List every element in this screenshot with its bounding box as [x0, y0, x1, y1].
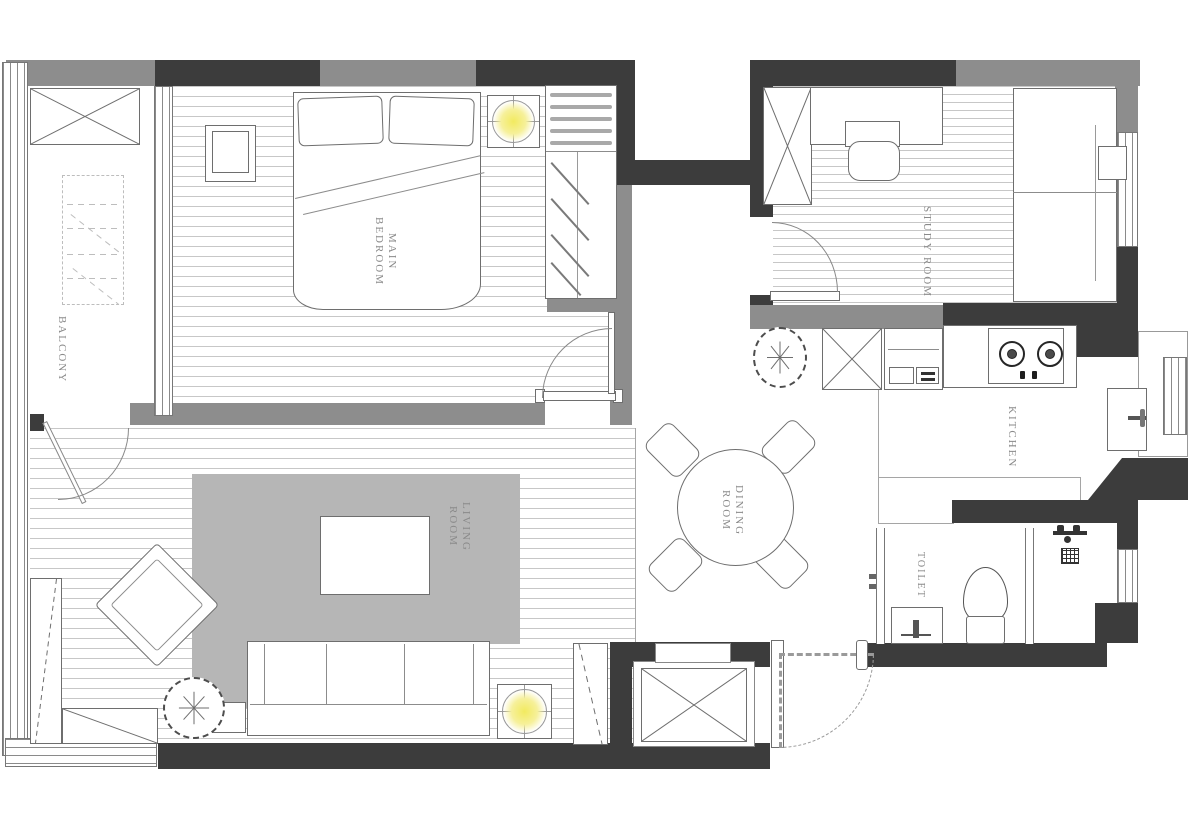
tv-diagonal-icon — [31, 579, 61, 743]
balcony-storage-cabinet — [30, 88, 140, 145]
burner-icon — [1037, 341, 1063, 367]
wall-gray — [750, 305, 943, 329]
wall — [1117, 523, 1138, 549]
wall-gray — [547, 298, 610, 312]
window-left — [2, 62, 28, 756]
study-bed — [1013, 88, 1117, 302]
sink-faucet-icon — [901, 634, 931, 636]
window-kitchen-right — [1163, 357, 1187, 435]
room-label-kitchen: KITCHEN — [1000, 404, 1018, 470]
wall-diagonal — [1088, 458, 1188, 500]
wall-gray — [320, 60, 476, 86]
niche-window — [655, 643, 731, 663]
desk-chair — [848, 141, 900, 181]
shower-drain — [1061, 548, 1079, 564]
x-cross-icon — [764, 88, 811, 204]
tv-unit — [30, 578, 62, 744]
x-cross-icon — [642, 669, 746, 741]
wall — [1075, 329, 1138, 357]
wall-gray — [6, 60, 155, 86]
cabinet-drawer — [889, 367, 914, 384]
wall-gray — [1115, 86, 1138, 132]
window-toilet-right — [1117, 549, 1138, 603]
coffee-table — [320, 516, 430, 595]
wall-gray — [130, 403, 545, 425]
study-bed-side-line — [1095, 125, 1096, 281]
sofa — [247, 641, 490, 736]
drying-rack — [62, 175, 124, 305]
tv-console — [62, 708, 158, 744]
window-balcony-partition — [154, 86, 173, 416]
wardrobe-divider — [546, 151, 616, 152]
toilet-top-edge — [878, 523, 954, 524]
ceiling-lamp-bedroom — [487, 95, 540, 148]
toilet-bowl — [963, 567, 1008, 623]
study-door-leaf — [770, 291, 840, 301]
shower-head-icon — [1064, 536, 1071, 543]
shower-tap-icon — [1057, 525, 1064, 532]
wall — [155, 60, 320, 86]
shower-partition — [1025, 528, 1034, 644]
lamp-glow — [492, 100, 535, 143]
wall — [1095, 603, 1138, 643]
burner-icon — [999, 341, 1025, 367]
plant-living — [163, 677, 225, 739]
wardrobe — [545, 85, 617, 299]
stove-knob — [1020, 371, 1025, 379]
floor-edge-line — [635, 428, 636, 643]
nightstand-lamp — [212, 131, 249, 173]
wall — [865, 643, 1107, 667]
mirror-diagonal-icon — [574, 644, 607, 744]
x-cross-icon — [823, 329, 881, 389]
wall — [750, 60, 956, 86]
room-label-toilet: TOILET — [911, 548, 927, 602]
kitchen-floor-edge-bottom — [878, 477, 1081, 478]
x-cross-icon — [31, 89, 139, 144]
kitchen-floor-edge-left — [878, 390, 879, 523]
study-bed-blanket — [1098, 146, 1127, 180]
plant-kitchen — [753, 327, 807, 388]
toilet-partition-left — [876, 528, 885, 644]
wall — [608, 160, 750, 185]
kitchen-cabinet — [884, 328, 943, 390]
shoe-cabinet — [641, 668, 747, 742]
kitchen-faucet-icon — [1140, 409, 1145, 427]
kitchen-floor-edge-step — [1080, 477, 1081, 501]
shower-tap-icon — [1073, 525, 1080, 532]
toilet-door-handle — [869, 574, 876, 579]
wall-gray — [956, 60, 1140, 86]
ceiling-lamp-living — [497, 684, 552, 739]
toilet-door-handle — [869, 584, 876, 589]
pillow — [388, 96, 475, 147]
room-label-balcony: BALCONY — [50, 312, 68, 388]
gas-stove — [988, 328, 1064, 384]
wall — [1117, 247, 1138, 307]
entry-mirror-cabinet — [573, 643, 608, 745]
plant-icon — [165, 679, 223, 737]
floor-plan-canvas: BALCONY MAIN BEDROOM STUDY ROOM KITCHEN … — [0, 0, 1200, 821]
study-wardrobe — [763, 87, 812, 205]
plant-icon — [755, 329, 805, 386]
lamp-glow — [502, 689, 547, 734]
fridge — [822, 328, 882, 390]
wall-end-cap — [856, 640, 868, 670]
stove-knob — [1032, 371, 1037, 379]
pillow — [297, 96, 384, 147]
toilet-tank — [966, 616, 1005, 644]
study-bed-divider — [1013, 192, 1117, 193]
dining-table — [677, 449, 794, 566]
cabinet-drawer — [916, 367, 939, 384]
console-diagonal-icon — [63, 709, 157, 743]
wall — [952, 500, 1138, 523]
